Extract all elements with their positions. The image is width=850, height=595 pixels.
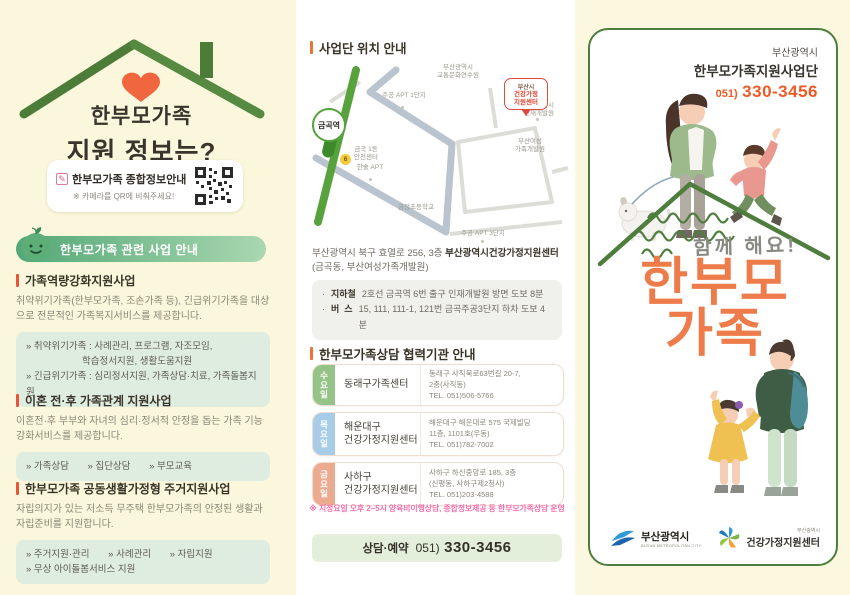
partner-header-title: 한부모가족상담 협력기관 안내	[319, 344, 475, 363]
program-1-title: 가족역량강화지원사업	[25, 272, 135, 289]
transit-subway-label: 지하철	[331, 287, 356, 302]
program-section-1: 가족역량강화지원사업 취약위기가족(한부모가족, 조손가족 등), 긴급위기가족…	[16, 272, 270, 407]
partner-addr: 사하구 하신중앙로 185, 3층	[429, 468, 557, 479]
map-label-traffic-institute: 부산광역시 교통문화연수원	[420, 64, 496, 80]
reservation-footer: 상담·예약 051) 330-3456	[312, 534, 562, 562]
program-2-body: 이혼전·후 부부와 자녀의 심리·정서적 안정을 돕는 가족 기능 강화서비스를…	[16, 415, 270, 444]
heart-icon	[122, 73, 160, 102]
transit-bus-row: · 버 스 15, 111, 111-1, 121번 금곡주공3단지 하차 도보…	[322, 302, 552, 333]
transit-subway-row: · 지하철 2호선 금곡역 6번 출구 인재개발원 방면 도보 8분	[322, 287, 552, 302]
partner-addr: 동래구 사직북로63번길 20-7,	[429, 369, 557, 380]
phone-number: 330-3456	[444, 539, 511, 556]
section-bar	[16, 394, 19, 407]
cover-card: 부산광역시 한부모가족지원사업단 051) 330-3456	[588, 28, 838, 566]
pencil-icon: ✎	[56, 173, 68, 185]
tag: » 부모교육	[149, 459, 192, 474]
tag: » 사례관리	[108, 547, 151, 562]
illustration-father-daughter	[676, 331, 826, 516]
day-tab-fri: 금요일	[313, 463, 335, 505]
address-text: 부산광역시 북구 효열로 256, 3층	[312, 248, 445, 259]
tag-line: 학습정서지원, 생활도움지원	[26, 354, 260, 369]
center-logo-mark-icon	[717, 526, 741, 550]
qr-code	[194, 166, 234, 206]
transit-subway-desc: 2호선 금곡역 6번 출구 인재개발원 방면 도보 8분	[362, 287, 544, 302]
tag: » 주거지원·관리	[26, 547, 90, 562]
cover-title-line1: 한부모	[590, 258, 838, 309]
transit-bus-label: 버 스	[331, 302, 353, 333]
busan-logo-name: 부산광역시	[641, 529, 701, 544]
brochure-sheet: 한부모가족 지원 정보는? ✎ 한부모가족 종합정보안내 ※ 카메라를 QR에 …	[0, 0, 850, 595]
location-header: 사업단 위치 안내	[310, 38, 406, 57]
transit-info-box: · 지하철 2호선 금곡역 6번 출구 인재개발원 방면 도보 8분 · 버 스…	[312, 280, 562, 340]
partner-row-thursday: 목요일 해운대구 건강가정지원센터 해운대구 해운대로 575 국제빌딩 11층…	[312, 412, 564, 456]
tag: » 가족상담	[26, 459, 69, 474]
partner-addr: (신평동, 사하구제2청사)	[429, 479, 557, 490]
qr-info-card: ✎ 한부모가족 종합정보안내 ※ 카메라를 QR에 비춰주세요!	[47, 160, 243, 212]
map-pin-line1: 부산시	[507, 82, 545, 91]
map-dot	[536, 118, 539, 121]
partner-addr: 11층, 1101호(우동)	[429, 429, 557, 440]
program-2-title: 이혼 전·후 가족관계 지원사업	[25, 392, 171, 409]
map-dot	[369, 178, 372, 181]
qr-card-subtitle: ※ 카메라를 QR에 비춰주세요!	[56, 191, 194, 202]
phone-prefix: 051)	[416, 541, 440, 555]
location-map: 금곡역 6 부산광역시 교통문화연수원 부산광역시 인재개발원 주공 APT 1…	[300, 62, 570, 242]
qr-card-title: 한부모가족 종합정보안내	[72, 171, 186, 187]
program-3-body: 자립의지가 있는 저소득 무주택 한부모가족의 안정된 생활과 자립준비를 지원…	[16, 503, 270, 532]
busan-logo-sub: BUSAN METROPOLITAN CITY	[641, 544, 701, 548]
tag: » 무상 아이돌봄서비스 지원	[26, 562, 260, 577]
program-3-tags: » 주거지원·관리 » 사례관리 » 자립지원 » 무상 아이돌봄서비스 지원	[16, 540, 270, 584]
map-pin-center: 부산시 건강가정 지원센터	[504, 78, 548, 110]
partner-tel: TEL. 051)203-4588	[429, 490, 557, 501]
reservation-label: 상담·예약	[362, 540, 408, 556]
center-address: 부산광역시 북구 효열로 256, 3층 부산광역시건강가정지원센터 (금곡동,…	[312, 247, 562, 275]
map-label-school: 금정초등학교	[388, 204, 444, 212]
day-tab-wed: 수요일	[313, 365, 335, 405]
day-tab-thu: 목요일	[313, 413, 335, 455]
map-dot	[414, 214, 417, 217]
footer-logos: 부산광역시 BUSAN METROPOLITAN CITY 부산광역시 건	[590, 526, 838, 550]
partner-row-friday: 금요일 사하구 건강가정지원센터 사하구 하신중앙로 185, 3층 (신평동,…	[312, 462, 564, 506]
partner-name: 동래구가족센터	[344, 378, 420, 392]
section-badge: 한부모가족 관련 사업 안내	[16, 236, 266, 262]
map-label-hansol-apt: 한솔 APT	[348, 164, 392, 172]
front-title-line1: 한부모가족	[0, 100, 283, 130]
program-section-3: 한부모가족 공동생활가정형 주거지원사업 자립의지가 있는 저소득 무주택 한부…	[16, 480, 270, 584]
org-name: 한부모가족지원사업단	[694, 60, 818, 80]
busan-logo-mark-icon	[610, 527, 636, 549]
bullet: ·	[322, 287, 325, 302]
map-station-geumgok: 금곡역	[312, 108, 346, 142]
location-header-title: 사업단 위치 안내	[319, 38, 406, 57]
map-dot	[481, 240, 484, 243]
map-pin-line3: 지원센터	[507, 99, 545, 107]
center-logo-region: 부산광역시	[746, 527, 820, 534]
tag: » 집단상담	[88, 459, 131, 474]
section-bar	[310, 347, 313, 360]
section-bar	[16, 274, 19, 287]
map-label-apt1: 주공 APT 1단지	[372, 92, 436, 100]
partner-addr: 2층(사직동)	[429, 380, 557, 391]
bullet: ·	[322, 302, 325, 333]
counseling-note: ※ 지정요일 오후 2~5시 양육비이행상담, 종합정보제공 등 한부모가족상담…	[306, 503, 568, 514]
partner-name: 사하구	[344, 471, 420, 485]
address-line2: (금곡동, 부산여성가족개발원)	[312, 261, 562, 275]
section-bar	[310, 41, 313, 54]
map-label-apt3: 주공 APT 3단지	[452, 230, 514, 238]
partner-name: 건강가정지원센터	[344, 484, 420, 498]
partner-tel: TEL. 051)506-5766	[429, 391, 557, 402]
partner-addr: 해운대구 해운대로 575 국제빌딩	[429, 418, 557, 429]
map-label-dong-center: 금곡 1동 안전센터	[348, 146, 384, 162]
program-2-tags: » 가족상담 » 집단상담 » 부모교육	[16, 452, 270, 481]
section-badge-label: 한부모가족 관련 사업 안내	[60, 241, 198, 258]
busan-city-logo: 부산광역시 BUSAN METROPOLITAN CITY	[610, 527, 701, 549]
partner-row-wednesday: 수요일 동래구가족센터 동래구 사직북로63번길 20-7, 2층(사직동) T…	[312, 364, 564, 406]
partner-name: 해운대구	[344, 421, 420, 435]
map-label-women-center: 부산여성 가족개발원	[504, 138, 556, 154]
map-dot	[401, 106, 404, 109]
sprout-face-icon	[18, 227, 54, 263]
front-title: 한부모가족 지원 정보는?	[0, 100, 283, 169]
transit-bus-desc: 15, 111, 111-1, 121번 금곡주공3단지 하차 도보 4분	[359, 302, 552, 333]
panel-cover: 부산광역시 한부모가족지원사업단 051) 330-3456	[575, 0, 850, 595]
partner-tel: TEL. 051)782-7002	[429, 440, 557, 451]
program-1-body: 취약위기가족(한부모가족, 조손가족 등), 긴급위기가족을 대상으로 전문적인…	[16, 295, 270, 324]
tag-line: » 취약위기가족 : 사례관리, 프로그램, 자조모임,	[26, 339, 260, 354]
panel-front-inner-middle: 사업단 위치 안내 금곡역 6 부산광역시 교통문화연수원 부산광역	[296, 0, 575, 595]
panel-front-inner-left: 한부모가족 지원 정보는? ✎ 한부모가족 종합정보안내 ※ 카메라를 QR에 …	[0, 0, 296, 595]
program-3-title: 한부모가족 공동생활가정형 주거지원사업	[25, 480, 230, 497]
section-bar	[16, 482, 19, 495]
center-logo-name: 건강가정지원센터	[746, 534, 820, 549]
address-center-name: 부산광역시건강가정지원센터	[445, 248, 559, 259]
program-section-2: 이혼 전·후 가족관계 지원사업 이혼전·후 부부와 자녀의 심리·정서적 안정…	[16, 392, 270, 481]
partner-header: 한부모가족상담 협력기관 안내	[310, 344, 475, 363]
tag: » 자립지원	[170, 547, 213, 562]
partner-name: 건강가정지원센터	[344, 434, 420, 448]
org-region: 부산광역시	[694, 44, 818, 59]
map-pin-line2: 건강가정	[507, 91, 545, 99]
healthy-family-center-logo: 부산광역시 건강가정지원센터	[717, 526, 820, 550]
